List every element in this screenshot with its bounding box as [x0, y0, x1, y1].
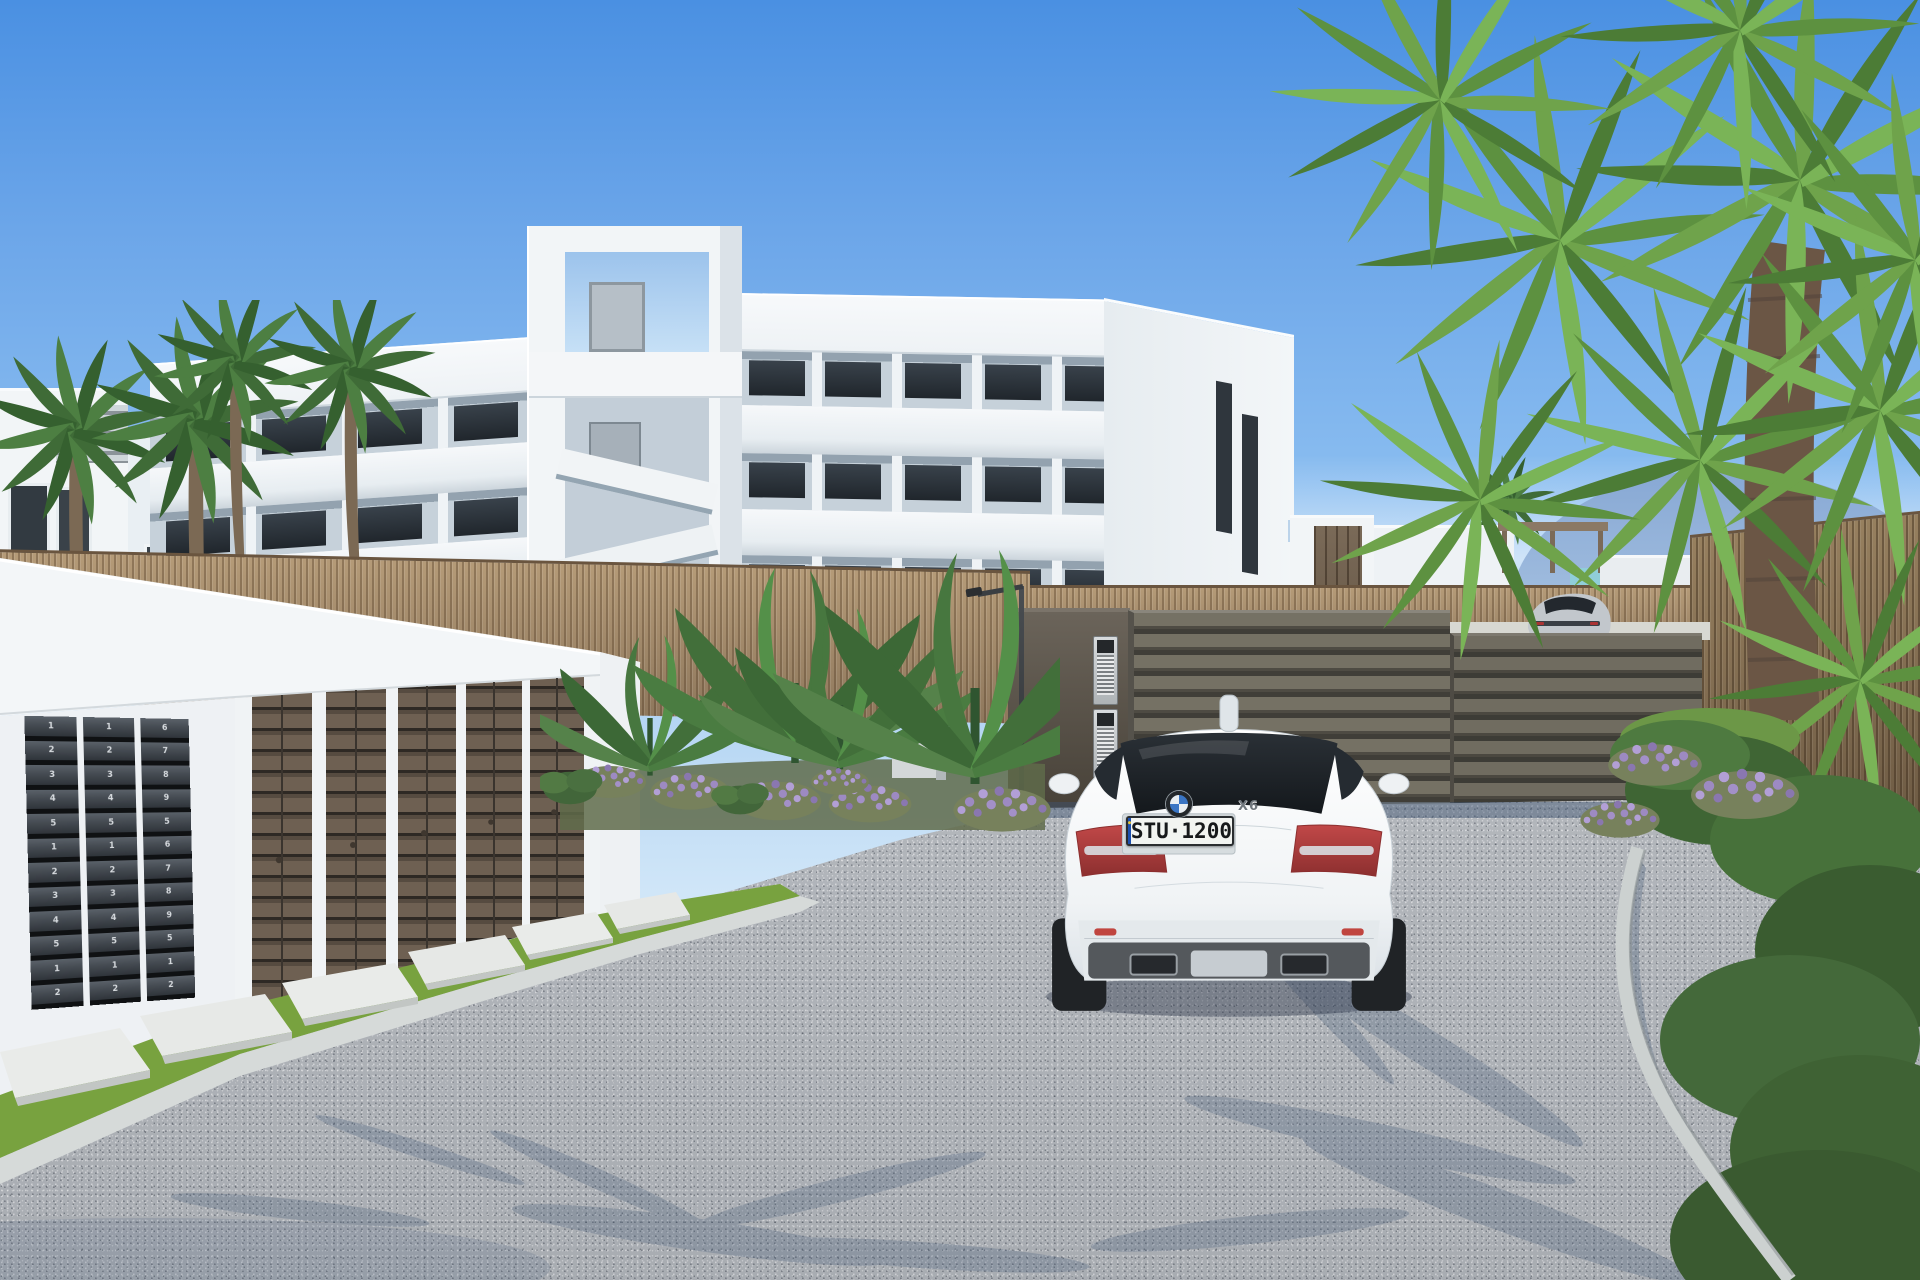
license-plate: STU·1200: [1126, 816, 1234, 846]
reflector: [1342, 928, 1364, 935]
architectural-render-scene: 123451234512 123451234512 678956789512: [0, 0, 1920, 1280]
stepping-stone: [0, 892, 690, 1106]
exhaust-tip: [1281, 955, 1327, 975]
side-mirror: [1049, 774, 1079, 794]
skid-plate: [1191, 951, 1267, 977]
exhaust-tip: [1130, 955, 1176, 975]
side-mirror: [1379, 774, 1409, 794]
x6-model-badge: X6: [1238, 799, 1272, 813]
bmw-x6-suv: [1038, 676, 1420, 1024]
reflector: [1094, 928, 1116, 935]
right-planting-bed: [1560, 680, 1920, 1280]
bmw-roundel-icon: [1166, 791, 1192, 817]
left-planting-bed: [540, 520, 1060, 850]
plate-number: STU·1200: [1131, 818, 1232, 844]
roof-antenna: [1220, 695, 1238, 731]
